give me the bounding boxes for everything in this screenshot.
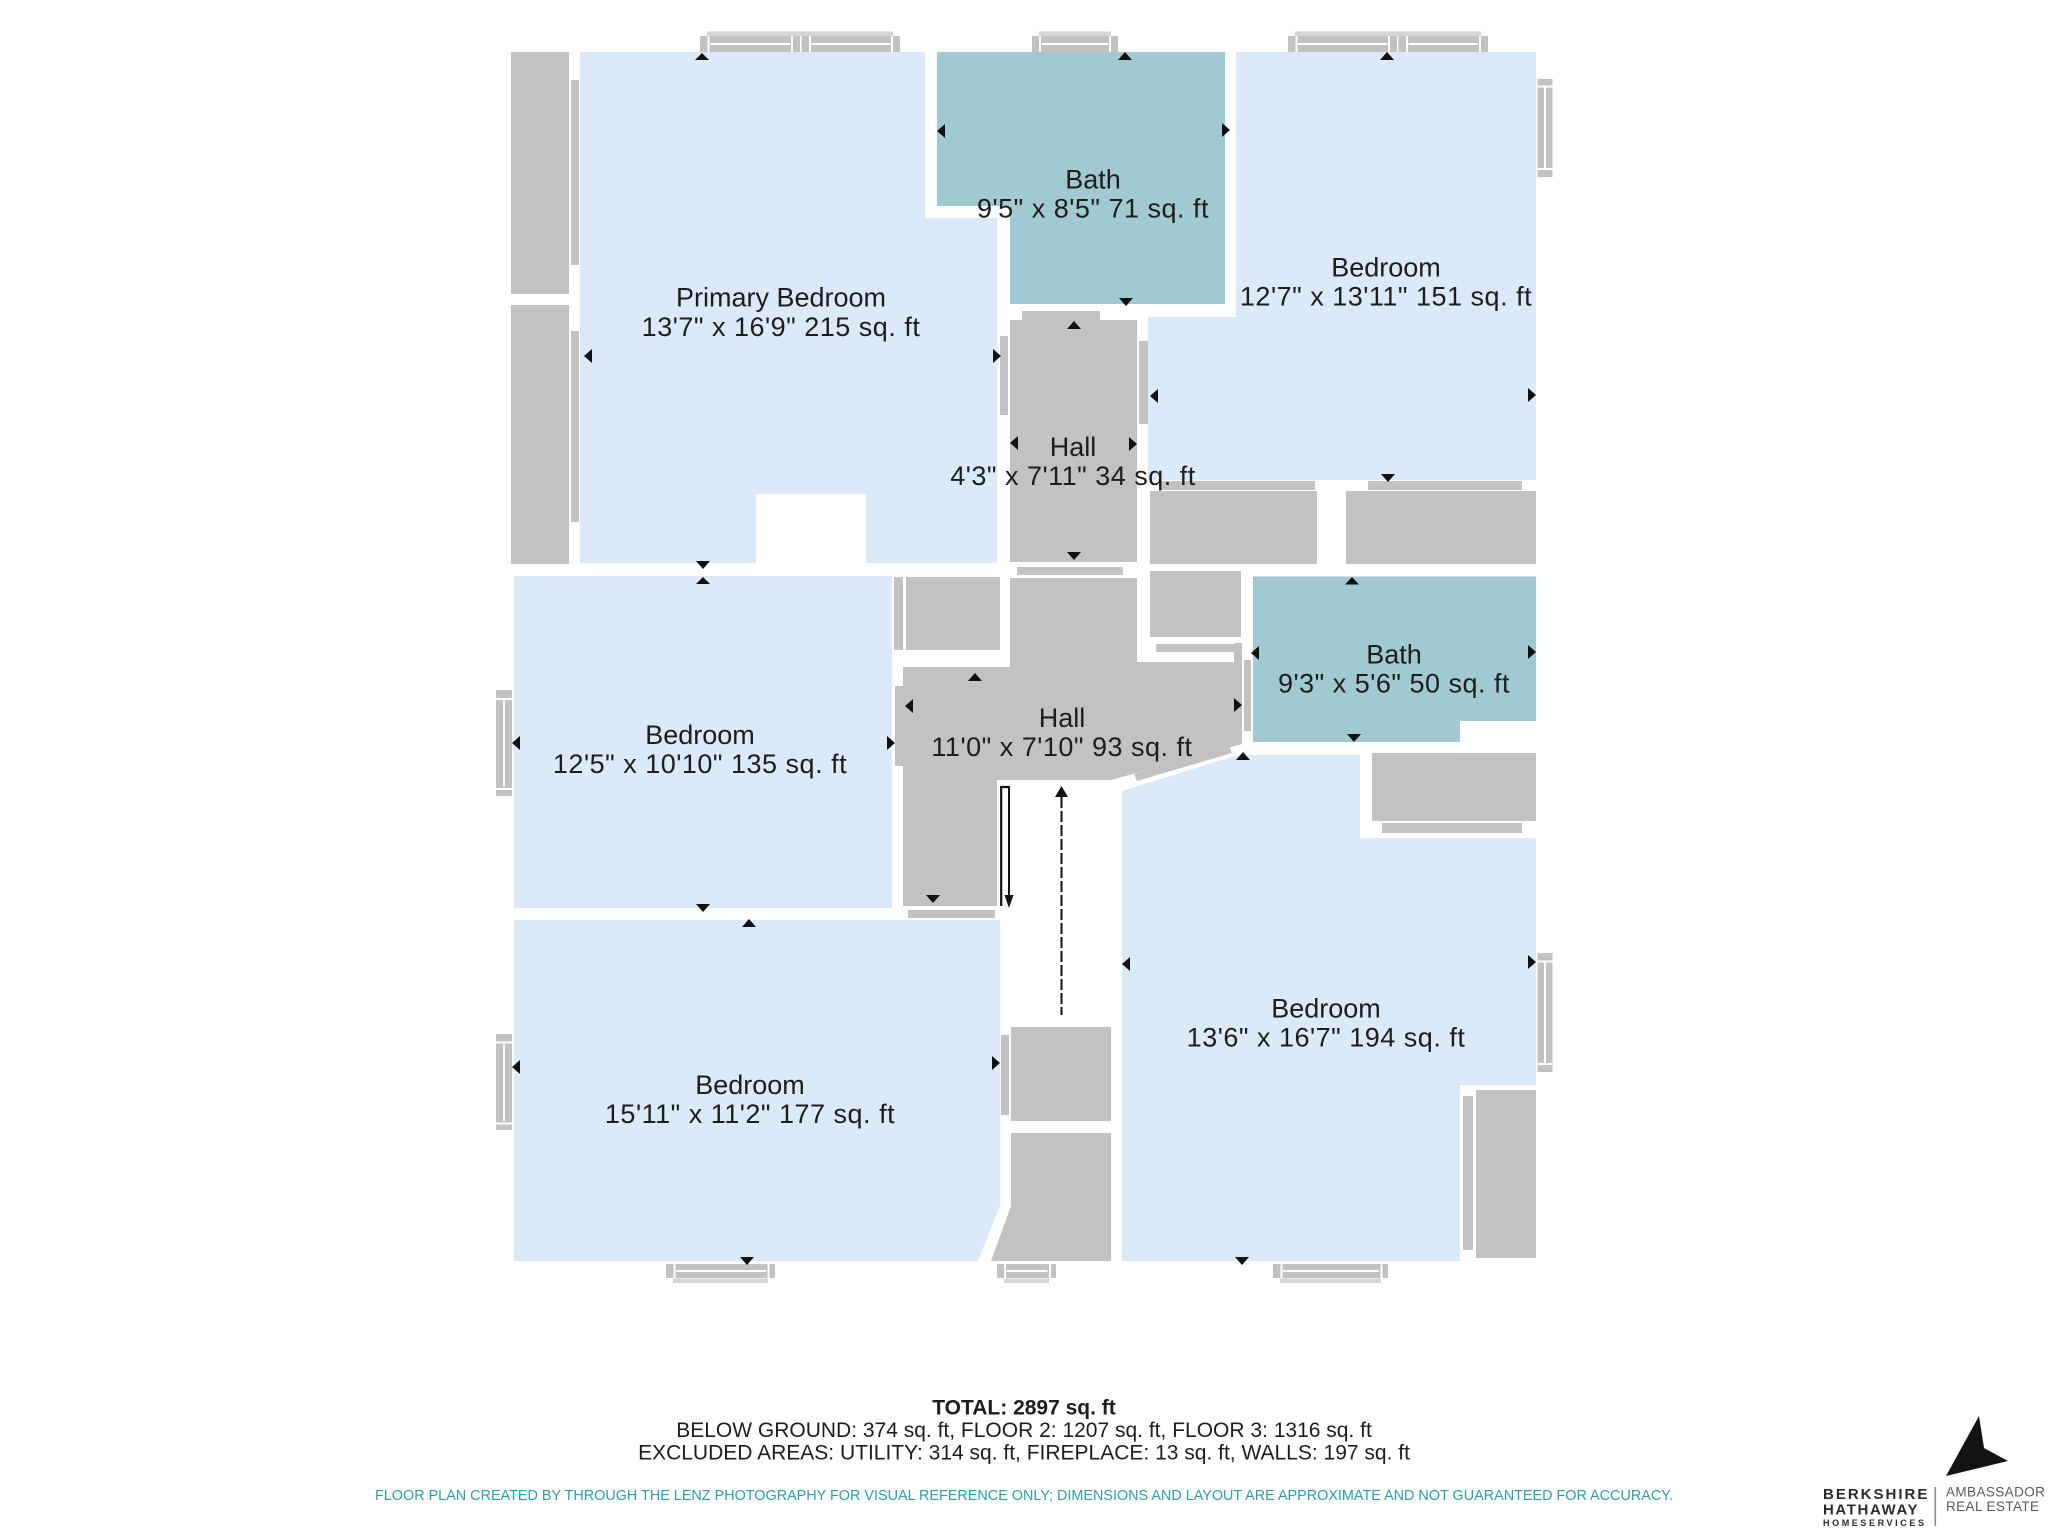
svg-text:AMBASSADOR: AMBASSADOR — [1946, 1485, 2045, 1500]
svg-text:REAL ESTATE: REAL ESTATE — [1946, 1499, 2039, 1514]
svg-text:Primary Bedroom: Primary Bedroom — [676, 283, 886, 313]
svg-text:Hall: Hall — [1039, 703, 1086, 733]
svg-text:Bedroom: Bedroom — [695, 1070, 805, 1100]
svg-text:Bath: Bath — [1366, 640, 1422, 670]
svg-text:HATHAWAY: HATHAWAY — [1823, 1502, 1919, 1519]
svg-text:Bedroom: Bedroom — [1271, 994, 1381, 1024]
svg-text:13'6" x 16'7" 194 sq. ft: 13'6" x 16'7" 194 sq. ft — [1187, 1023, 1466, 1053]
svg-text:Hall: Hall — [1050, 432, 1097, 462]
svg-text:15'11" x 11'2" 177 sq. ft: 15'11" x 11'2" 177 sq. ft — [605, 1099, 895, 1129]
svg-text:4'3" x 7'11" 34 sq. ft: 4'3" x 7'11" 34 sq. ft — [950, 461, 1196, 491]
svg-text:Bedroom: Bedroom — [1331, 253, 1441, 283]
svg-text:12'7" x 13'11" 151 sq. ft: 12'7" x 13'11" 151 sq. ft — [1240, 282, 1532, 312]
svg-text:BERKSHIRE: BERKSHIRE — [1823, 1486, 1929, 1503]
svg-text:EXCLUDED AREAS: UTILITY: 314 s: EXCLUDED AREAS: UTILITY: 314 sq. ft, FIR… — [638, 1442, 1410, 1465]
svg-text:Bedroom: Bedroom — [645, 720, 755, 750]
svg-text:9'5" x 8'5" 71 sq. ft: 9'5" x 8'5" 71 sq. ft — [977, 194, 1209, 224]
svg-text:BELOW GROUND: 374 sq. ft, FLOO: BELOW GROUND: 374 sq. ft, FLOOR 2: 1207 … — [676, 1419, 1372, 1442]
svg-text:HOMESERVICES: HOMESERVICES — [1823, 1518, 1927, 1528]
svg-text:FLOOR PLAN CREATED BY THROUGH: FLOOR PLAN CREATED BY THROUGH THE LENZ P… — [375, 1488, 1673, 1504]
svg-text:TOTAL: 2897 sq. ft: TOTAL: 2897 sq. ft — [932, 1397, 1116, 1420]
svg-text:9'3" x 5'6" 50 sq. ft: 9'3" x 5'6" 50 sq. ft — [1278, 669, 1510, 699]
svg-text:Bath: Bath — [1065, 165, 1121, 195]
svg-text:11'0" x 7'10" 93 sq. ft: 11'0" x 7'10" 93 sq. ft — [931, 732, 1192, 762]
svg-text:13'7" x 16'9" 215 sq. ft: 13'7" x 16'9" 215 sq. ft — [642, 312, 921, 342]
svg-text:12'5" x 10'10" 135 sq. ft: 12'5" x 10'10" 135 sq. ft — [553, 749, 847, 779]
